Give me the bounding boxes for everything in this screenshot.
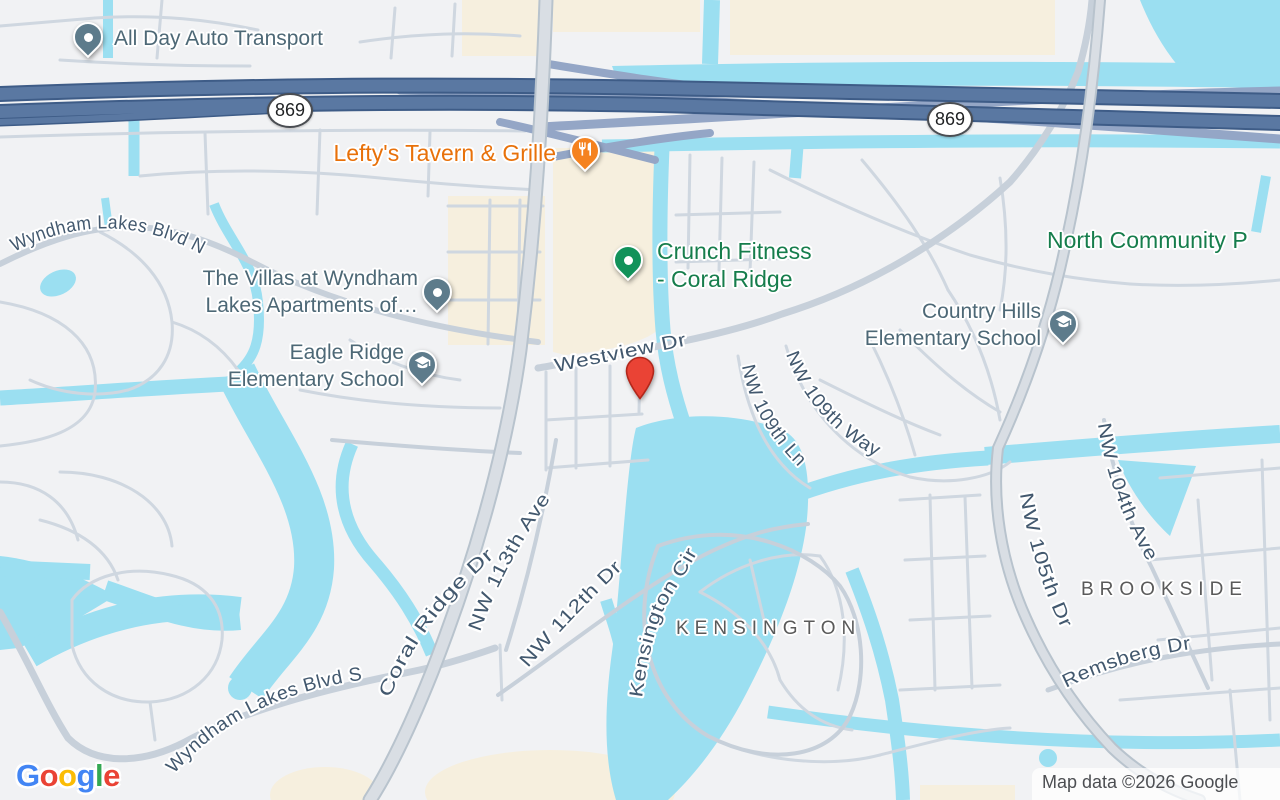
poi-label-line1: Eagle Ridge [154, 339, 404, 366]
area-label-brookside: BROOKSIDE [1081, 579, 1248, 601]
google-logo-letter: o [40, 758, 58, 793]
google-logo-letter: G [16, 758, 40, 793]
poi-pin-country-hills[interactable] [1048, 309, 1078, 339]
poi-label-country-hills[interactable]: Country Hills Elementary School [791, 298, 1041, 352]
poi-label-line2: Elementary School [154, 366, 404, 393]
area-label-kensington: KENSINGTON [676, 618, 861, 640]
street-label-remsberg-dr: Remsberg Dr [1059, 633, 1192, 692]
map-attribution: Map data ©2026 Google [1042, 772, 1238, 793]
pin-icon [1042, 303, 1084, 345]
school-icon [414, 354, 431, 376]
map-viewport[interactable]: Wyndham Lakes Blvd N Westview Dr NW 109t… [0, 0, 1280, 800]
poi-label-north-community[interactable]: North Community P [1047, 226, 1248, 254]
poi-label-line1: Country Hills [791, 298, 1041, 325]
google-logo-letter: e [103, 758, 120, 793]
route-badge-label: 869 [935, 109, 965, 130]
poi-pin-crunch-fitness[interactable] [613, 245, 643, 275]
poi-label-line1: Crunch Fitness [657, 237, 812, 265]
poi-label-eagle-ridge[interactable]: Eagle Ridge Elementary School [154, 339, 404, 393]
poi-label-all-day-auto-transport[interactable]: All Day Auto Transport [114, 25, 323, 52]
poi-pin-villas-wyndham[interactable] [422, 277, 452, 307]
svg-text:Remsberg Dr: Remsberg Dr [1059, 633, 1192, 692]
poi-label-line2: - Coral Ridge [657, 265, 812, 293]
google-logo-letter: o [58, 758, 76, 793]
restaurant-icon [577, 141, 593, 162]
dot-icon [84, 33, 93, 42]
poi-label-villas-wyndham[interactable]: The Villas at Wyndham Lakes Apartments o… [120, 265, 418, 319]
route-badge-label: 869 [275, 100, 305, 121]
poi-label-line2: Lakes Apartments of… [120, 292, 418, 319]
pin-icon [67, 16, 109, 58]
poi-pin-leftys-tavern[interactable] [570, 136, 600, 166]
pin-icon [564, 130, 606, 172]
poi-pin-eagle-ridge[interactable] [407, 350, 437, 380]
poi-label-leftys-tavern[interactable]: Lefty's Tavern & Grille [286, 139, 556, 167]
google-logo[interactable]: Google [16, 758, 120, 794]
pin-icon [416, 271, 458, 313]
route-badge-869-east: 869 [927, 102, 973, 137]
dot-icon [624, 256, 633, 265]
pin-icon [607, 239, 649, 281]
pin-icon [401, 344, 443, 386]
dot-icon [433, 288, 442, 297]
poi-label-crunch-fitness[interactable]: Crunch Fitness - Coral Ridge [657, 237, 812, 293]
google-logo-letter: g [77, 758, 95, 793]
school-icon [1055, 313, 1072, 335]
destination-marker-icon[interactable] [625, 356, 655, 405]
google-logo-letter: l [95, 758, 103, 793]
poi-label-line2: Elementary School [791, 325, 1041, 352]
poi-label-line1: The Villas at Wyndham [120, 265, 418, 292]
poi-pin-all-day-auto-transport[interactable] [73, 22, 103, 52]
route-badge-869-west: 869 [267, 93, 313, 128]
